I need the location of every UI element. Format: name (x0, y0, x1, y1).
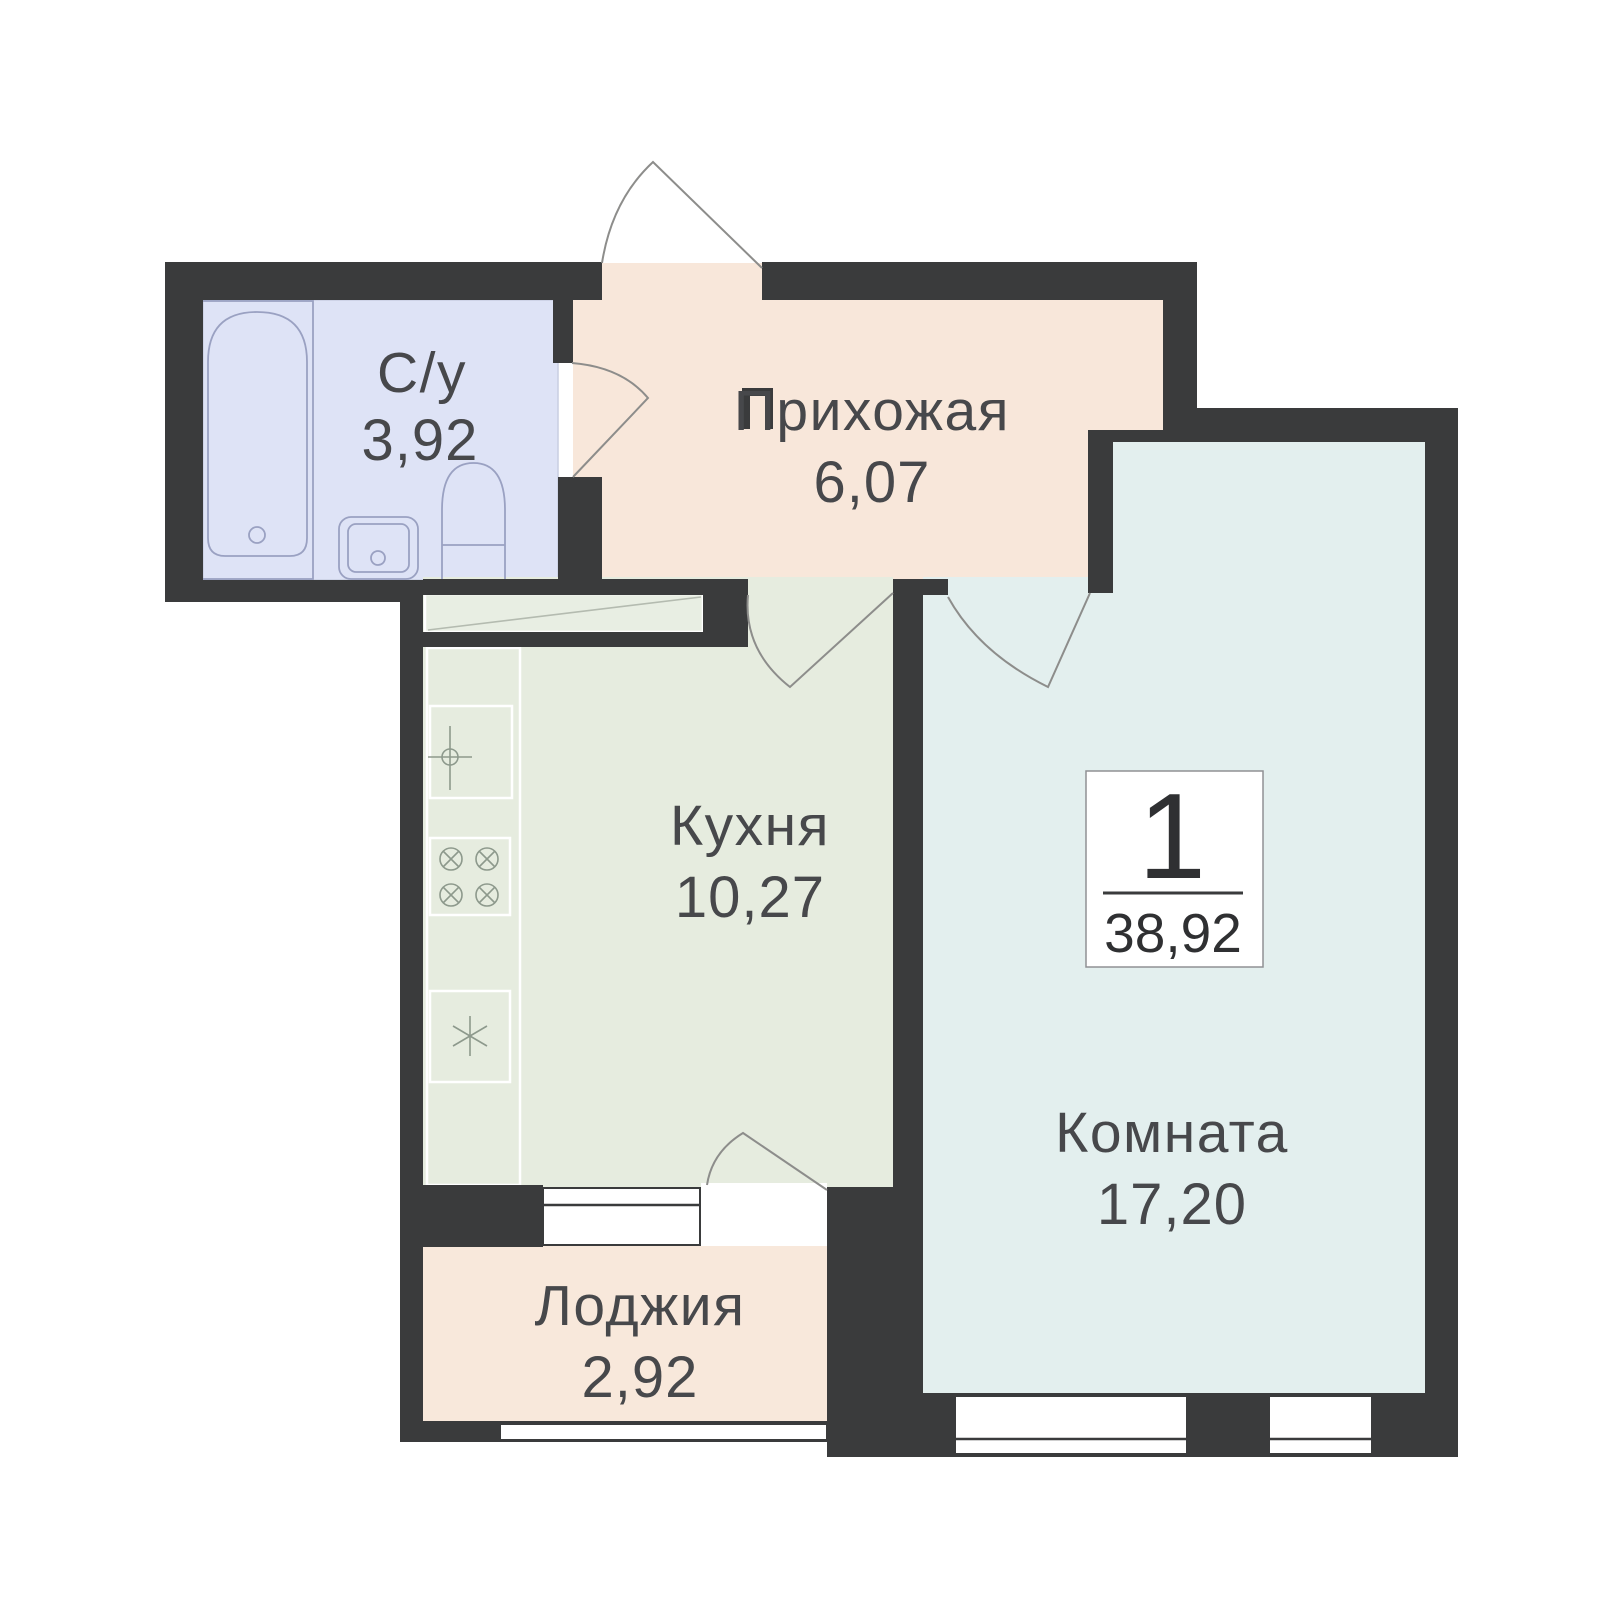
wardrobe-icon (425, 594, 703, 632)
living-room-label: Комната (1055, 1101, 1289, 1165)
living-room-window-2 (1269, 1396, 1372, 1454)
kitchen-label: Кухня (670, 794, 830, 858)
bathroom-label: С/у (377, 341, 467, 405)
living-room-floor-left (923, 577, 1425, 1393)
floor-plan: 1 38,92 С/у 3,92 Прихожая 6,07 Кухня 10,… (0, 0, 1620, 1620)
hallway-label: Прихожая (734, 379, 1010, 443)
kitchen-window (543, 1188, 700, 1245)
living-room-area: 17,20 (1097, 1172, 1247, 1237)
loggia-label: Лоджия (535, 1274, 746, 1338)
floor-plan-page: 1 38,92 С/у 3,92 Прихожая 6,07 Кухня 10,… (0, 0, 1620, 1620)
badge-total-area: 38,92 (1104, 902, 1242, 964)
loggia-area: 2,92 (582, 1345, 699, 1410)
loggia-window (500, 1424, 827, 1440)
balcony-door-opening (701, 1183, 827, 1246)
hallway-area: 6,07 (814, 450, 931, 515)
entrance-door-arc (602, 162, 762, 268)
bathroom-area: 3,92 (362, 408, 479, 473)
badge-rooms-count: 1 (1138, 768, 1206, 904)
apartment-badge: 1 38,92 (1086, 768, 1263, 967)
living-room-window-1 (955, 1396, 1187, 1454)
kitchen-area: 10,27 (675, 865, 825, 930)
